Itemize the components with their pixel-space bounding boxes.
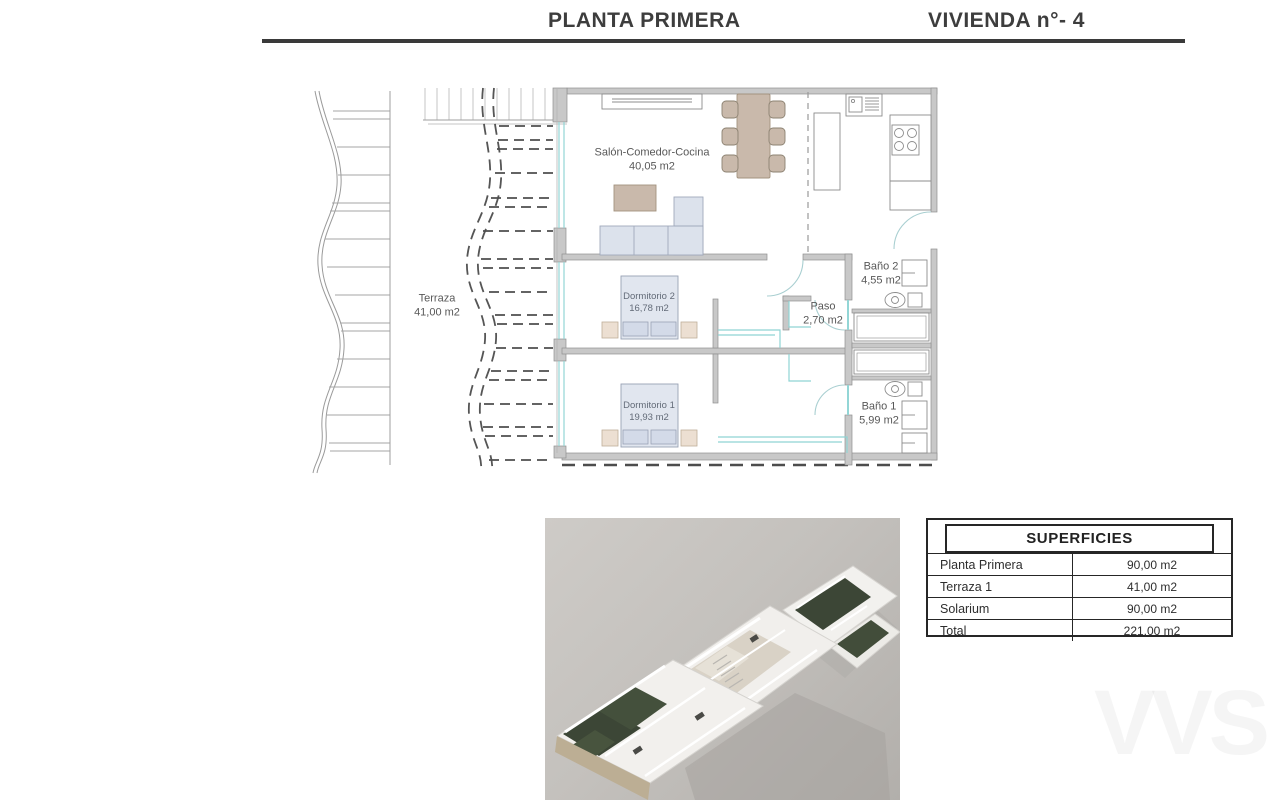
pergola-boundary <box>467 88 501 473</box>
row-value: 221,00 m2 <box>1072 620 1231 641</box>
superficies-table-title: SUPERFICIES <box>945 524 1214 553</box>
window-band <box>559 122 564 446</box>
chair <box>722 128 738 145</box>
dining-table <box>722 94 785 178</box>
plan-sheet: { "header": { "left_title": "PLANTA PRIM… <box>0 0 1280 800</box>
nightstand <box>681 430 697 446</box>
row-label: Solarium <box>928 602 1072 616</box>
chair <box>769 101 785 118</box>
render-illustration <box>545 518 900 800</box>
coffee-table <box>614 185 656 211</box>
watermark-logo: VVS <box>1085 648 1275 798</box>
nightstand <box>681 322 697 338</box>
row-value: 41,00 m2 <box>1072 576 1231 597</box>
chair <box>769 128 785 145</box>
row-label: Terraza 1 <box>928 580 1072 594</box>
table-row: Total 221,00 m2 <box>928 619 1231 641</box>
table-row: Planta Primera 90,00 m2 <box>928 553 1231 575</box>
pergola-joists <box>481 126 553 460</box>
kitchen <box>814 94 931 210</box>
floor-plan-drawing <box>285 63 945 488</box>
row-value: 90,00 m2 <box>1072 554 1231 575</box>
nightstand <box>602 322 618 338</box>
table-row: Terraza 1 41,00 m2 <box>928 575 1231 597</box>
floor-plan: Salón-Comedor-Cocina40,05 m2 Terraza41,0… <box>285 63 945 488</box>
kitchen-counter-left <box>814 113 840 190</box>
chair <box>722 155 738 172</box>
superficies-table-rows: Planta Primera 90,00 m2 Terraza 1 41,00 … <box>928 553 1231 629</box>
sink-bowl <box>849 97 862 112</box>
superficies-table: SUPERFICIES Planta Primera 90,00 m2 Terr… <box>926 518 1233 637</box>
bed-dormitorio-1 <box>602 384 697 447</box>
nightstand <box>602 430 618 446</box>
bed-dormitorio-2 <box>602 276 697 339</box>
tv-unit <box>602 94 702 109</box>
terrace-deck-lines <box>325 111 390 451</box>
terrace-cliff-edge <box>313 91 344 473</box>
row-label: Total <box>928 624 1072 638</box>
stair-hatch <box>425 88 557 120</box>
building-3d-render <box>545 518 900 800</box>
row-value: 90,00 m2 <box>1072 598 1231 619</box>
row-label: Planta Primera <box>928 558 1072 572</box>
wardrobes <box>718 301 847 453</box>
page-title-planta: PLANTA PRIMERA <box>548 9 741 33</box>
chair <box>722 101 738 118</box>
chair <box>769 155 785 172</box>
bathroom-fixtures <box>854 260 929 453</box>
page-title-vivienda: VIVIENDA n°- 4 <box>928 9 1085 33</box>
header-rule <box>262 39 1185 43</box>
table-row: Solarium 90,00 m2 <box>928 597 1231 619</box>
